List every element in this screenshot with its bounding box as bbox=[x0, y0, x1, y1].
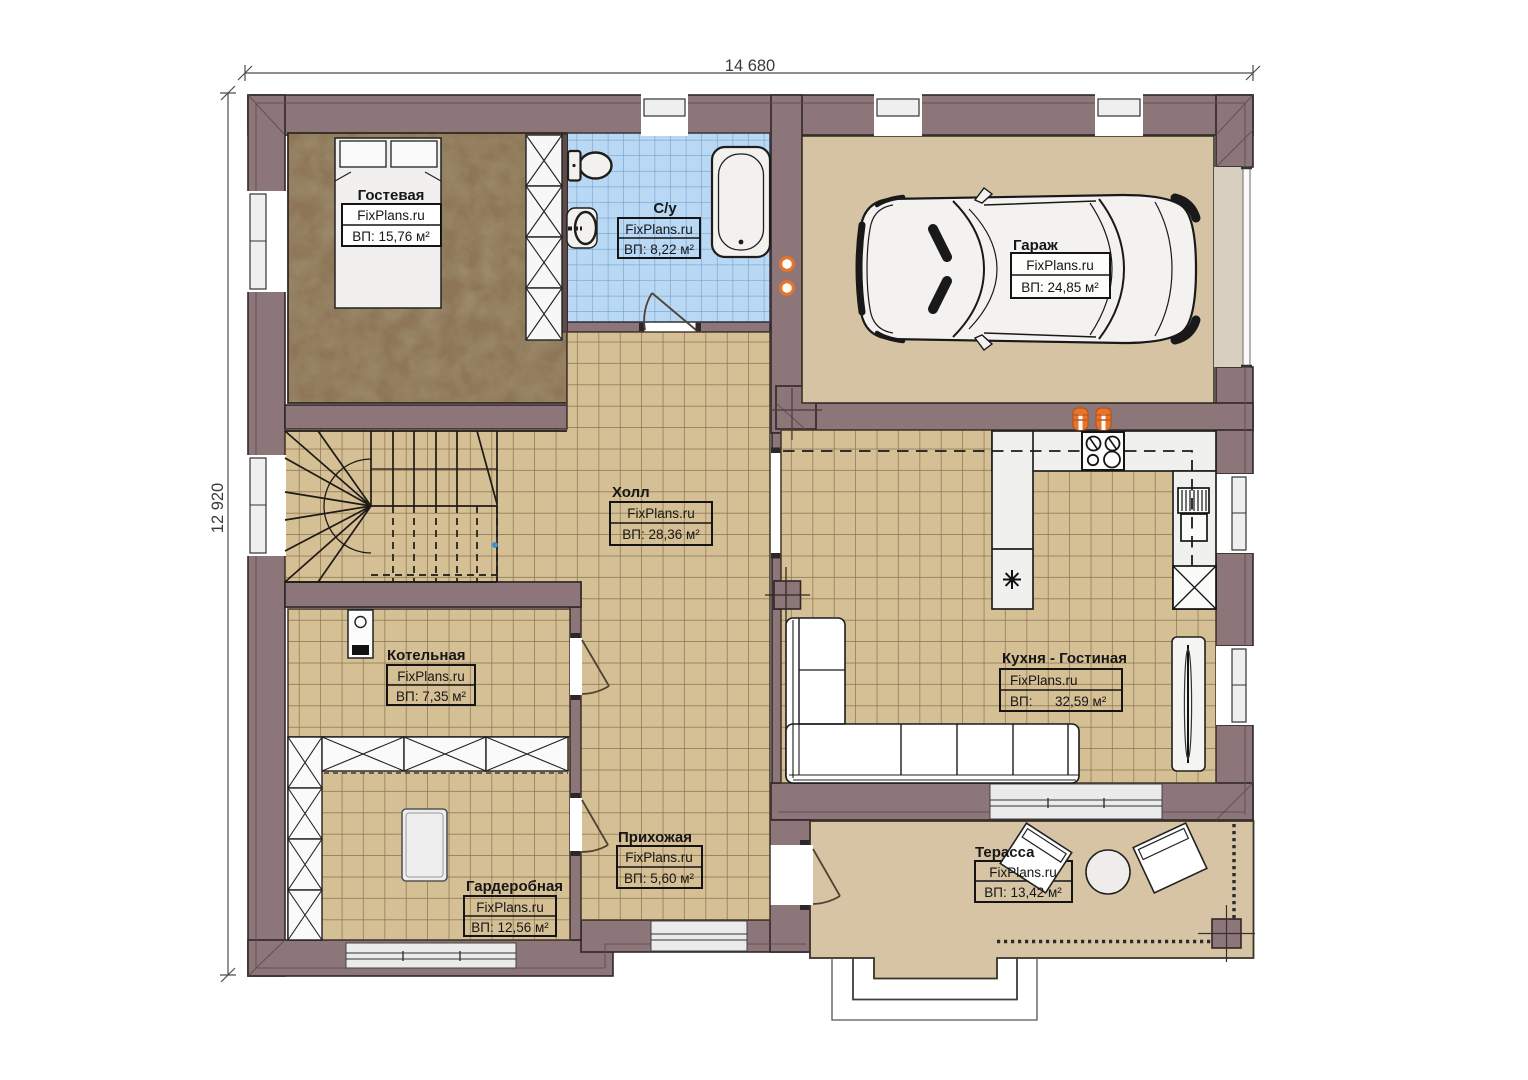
svg-text:Гостевая: Гостевая bbox=[358, 187, 425, 204]
svg-text:Гараж: Гараж bbox=[1013, 237, 1058, 254]
svg-text:Холл: Холл bbox=[612, 484, 650, 501]
svg-text:FixPlans.ru: FixPlans.ru bbox=[476, 900, 544, 915]
svg-text:Кухня - Гостиная: Кухня - Гостиная bbox=[1002, 650, 1127, 667]
svg-text:ВП: 5,60 м²: ВП: 5,60 м² bbox=[624, 871, 695, 886]
svg-text:Прихожая: Прихожая bbox=[618, 829, 692, 846]
svg-text:FixPlans.ru: FixPlans.ru bbox=[625, 850, 693, 865]
svg-text:FixPlans.ru: FixPlans.ru bbox=[397, 669, 465, 684]
svg-text:ВП: 7,35 м²: ВП: 7,35 м² bbox=[396, 689, 467, 704]
svg-text:С/у: С/у bbox=[653, 200, 677, 217]
svg-text:FixPlans.ru: FixPlans.ru bbox=[1010, 673, 1078, 688]
svg-text:14 680: 14 680 bbox=[725, 57, 775, 75]
svg-text:ВП: 15,76 м²: ВП: 15,76 м² bbox=[352, 229, 430, 244]
svg-text:ВП: 24,85 м²: ВП: 24,85 м² bbox=[1021, 280, 1099, 295]
svg-text:ВП: 12,56 м²: ВП: 12,56 м² bbox=[471, 920, 549, 935]
svg-text:ВП: 13,42 м²: ВП: 13,42 м² bbox=[984, 885, 1062, 900]
svg-text:32,59 м²: 32,59 м² bbox=[1055, 694, 1107, 709]
svg-text:Гардеробная: Гардеробная bbox=[466, 878, 563, 895]
svg-text:Терасса: Терасса bbox=[975, 844, 1035, 861]
svg-text:ВП:: ВП: bbox=[1010, 694, 1032, 709]
svg-text:ВП: 28,36 м²: ВП: 28,36 м² bbox=[622, 527, 700, 542]
svg-text:ВП: 8,22 м²: ВП: 8,22 м² bbox=[624, 242, 695, 257]
svg-text:FixPlans.ru: FixPlans.ru bbox=[989, 865, 1057, 880]
svg-text:FixPlans.ru: FixPlans.ru bbox=[627, 506, 695, 521]
svg-text:FixPlans.ru: FixPlans.ru bbox=[357, 208, 425, 223]
svg-text:FixPlans.ru: FixPlans.ru bbox=[625, 222, 693, 237]
svg-text:12 920: 12 920 bbox=[209, 483, 227, 533]
svg-text:FixPlans.ru: FixPlans.ru bbox=[1026, 258, 1094, 273]
svg-text:Котельная: Котельная bbox=[387, 647, 466, 664]
